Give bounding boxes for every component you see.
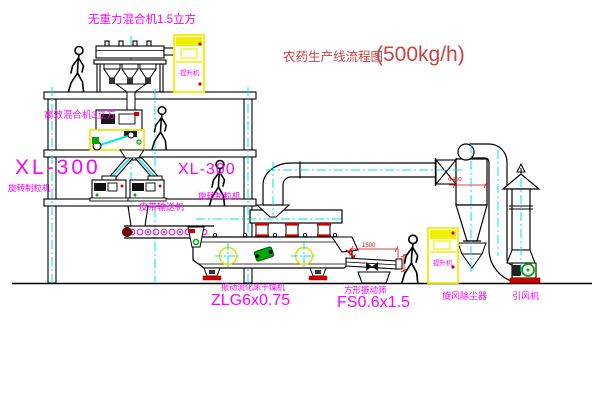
label-hoist-1: 提升机 [180,71,200,78]
mixer-motor [92,137,99,144]
gravity-mixer [94,41,175,112]
bucket-elevator-2 [428,228,458,283]
mixer-hopper-units [104,64,156,84]
dimension-text-450: Φ450 [448,178,462,184]
label-belt-conveyor: 皮带输送机 [139,203,184,212]
label-dryer-name: 振动流化床干燥机 [221,284,285,292]
dimension-text-1500: 1500 [362,243,375,249]
fluid-bed-dryer [188,210,352,280]
label-hoist-2: 提升机 [433,261,453,268]
conveyor-tail-pulley [123,228,132,237]
label-granulator-right-name: 旋转制粒机 [198,192,241,201]
rotary-granulator-left [90,176,128,201]
floor-slab-1 [44,92,256,99]
process-flow-diagram: 无重力混合机1.5立方 农药生产线流程图 (500kg/h) 高效混合机3立方 … [0,0,600,403]
person-2 [152,107,166,150]
cyclone-discharge [462,254,482,268]
mixer-downpipe [127,92,135,112]
page-title-capacity: (500kg/h) [376,44,465,65]
label-cyclone: 旋风除尘器 [442,292,487,301]
dryer-hood-connectors [255,223,331,237]
label-granulator-left-name: 旋转制粒机 [8,184,51,193]
label-dryer-model: ZLG6x0.75 [211,293,290,309]
label-fan: 引风机 [512,292,539,301]
label-granulator-left-model: XL-300 [15,157,101,178]
bucket-elevator-1 [174,35,204,92]
cyclone-scroll [458,144,474,160]
fan-base [510,278,540,283]
rotary-granulator-right [128,176,166,201]
label-granulator-right-model: XL-300 [178,162,236,178]
screen-base [358,272,390,283]
induced-draft-fan [510,263,540,283]
dryer-spring-mounts [203,268,327,280]
label-gravity-mixer: 无重力混合机1.5立方 [88,15,196,27]
page-title: 农药生产线流程图 [283,51,383,64]
label-screen-model: FS0.6x1.5 [337,295,410,311]
label-high-efficiency-mixer: 高效混合机3立方 [44,111,116,121]
person-1 [69,47,84,92]
